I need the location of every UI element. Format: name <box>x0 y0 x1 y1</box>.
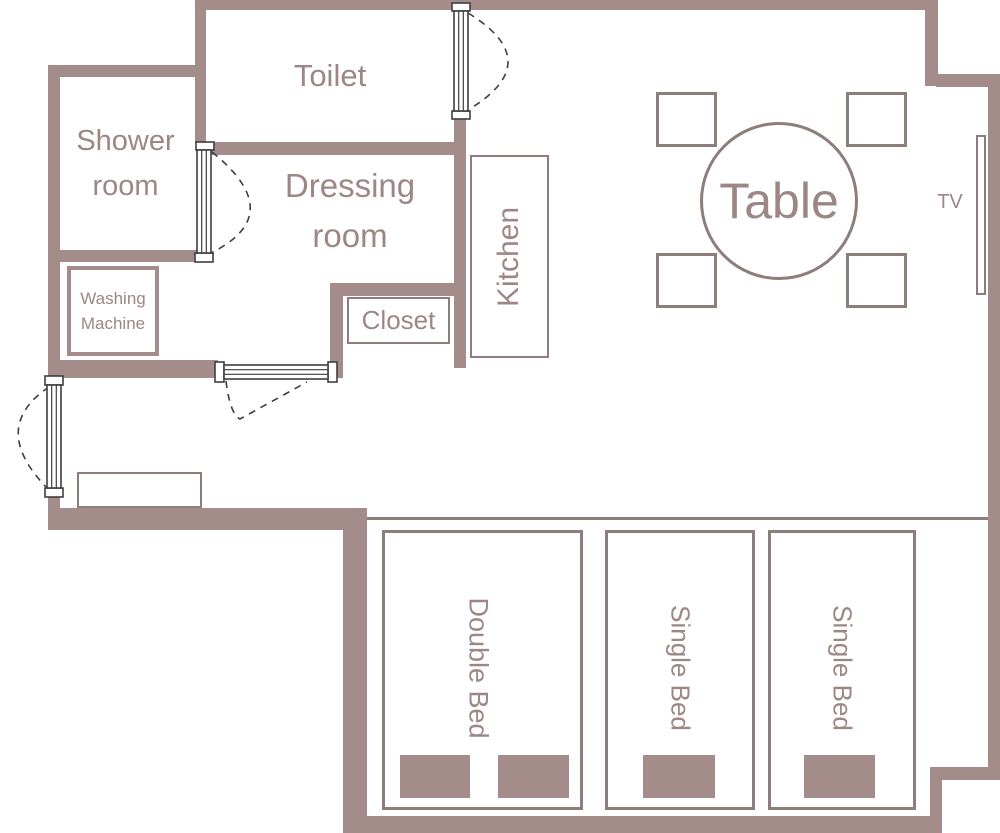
washing-machine-label-line2: Machine <box>81 311 145 336</box>
entrance-door-icon <box>18 376 63 497</box>
dressing-room-label: Dressing room <box>250 161 450 261</box>
chair-bottom-left <box>656 253 717 308</box>
toilet-label: Toilet <box>207 10 453 142</box>
shower-room-label: Shower room <box>60 77 191 250</box>
dining-table: Table <box>700 122 858 280</box>
wall-dressing-right <box>454 116 466 368</box>
tv-label: TV <box>925 190 975 214</box>
table-label: Table <box>719 172 839 230</box>
single-bed-right-pillow <box>804 755 875 798</box>
wall-right <box>988 74 1000 780</box>
shower-door-icon <box>195 142 250 262</box>
tv-label-text: TV <box>937 191 963 214</box>
tv-unit <box>976 135 986 295</box>
wall-top <box>195 0 937 10</box>
closet-label-text: Closet <box>362 305 436 336</box>
wall-entry-bottom <box>48 508 348 530</box>
toilet-label-text: Toilet <box>294 58 366 94</box>
single-bed-right-label: Single Bed <box>827 605 858 731</box>
washing-machine-label: Washing Machine <box>67 266 159 356</box>
single-bed-left-label: Single Bed <box>665 605 696 731</box>
dressing-room-label-line2: room <box>312 211 387 261</box>
double-bed-pillow-left <box>400 755 470 798</box>
washing-machine-label-line1: Washing <box>80 286 146 311</box>
double-bed-label: Double Bed <box>463 597 494 738</box>
dressing-room-label-line1: Dressing <box>285 161 415 211</box>
wall-closet-top <box>343 283 457 296</box>
chair-top-right <box>846 92 907 147</box>
wall-toilet-left <box>195 0 206 143</box>
wall-bottom <box>343 816 942 833</box>
closet-label: Closet <box>347 297 450 344</box>
bedroom-boundary-line <box>367 517 988 520</box>
chair-bottom-right <box>846 253 907 308</box>
kitchen-label: Kitchen <box>492 207 526 307</box>
single-bed-left-pillow <box>643 755 715 798</box>
wall-bedroom-left <box>343 508 367 833</box>
toilet-door-icon <box>452 3 508 119</box>
shower-room-label-line2: room <box>92 164 158 209</box>
double-bed-pillow-right <box>498 755 569 798</box>
floor-plan: Washing Machine Closet Kitchen Table TV … <box>0 0 1000 833</box>
chair-top-left <box>656 92 717 147</box>
wall-shower-top <box>48 65 198 77</box>
wall-washing-bottom <box>48 360 218 378</box>
wall-left-lower <box>48 494 60 530</box>
wall-closet-left <box>330 283 343 378</box>
shower-room-label-line1: Shower <box>76 119 174 164</box>
entry-step <box>77 472 202 508</box>
wall-left-upper <box>48 65 60 382</box>
wall-shower-bottom <box>48 250 197 262</box>
wall-toilet-dressing-divider <box>206 142 455 155</box>
corridor-door-icon <box>215 362 337 419</box>
